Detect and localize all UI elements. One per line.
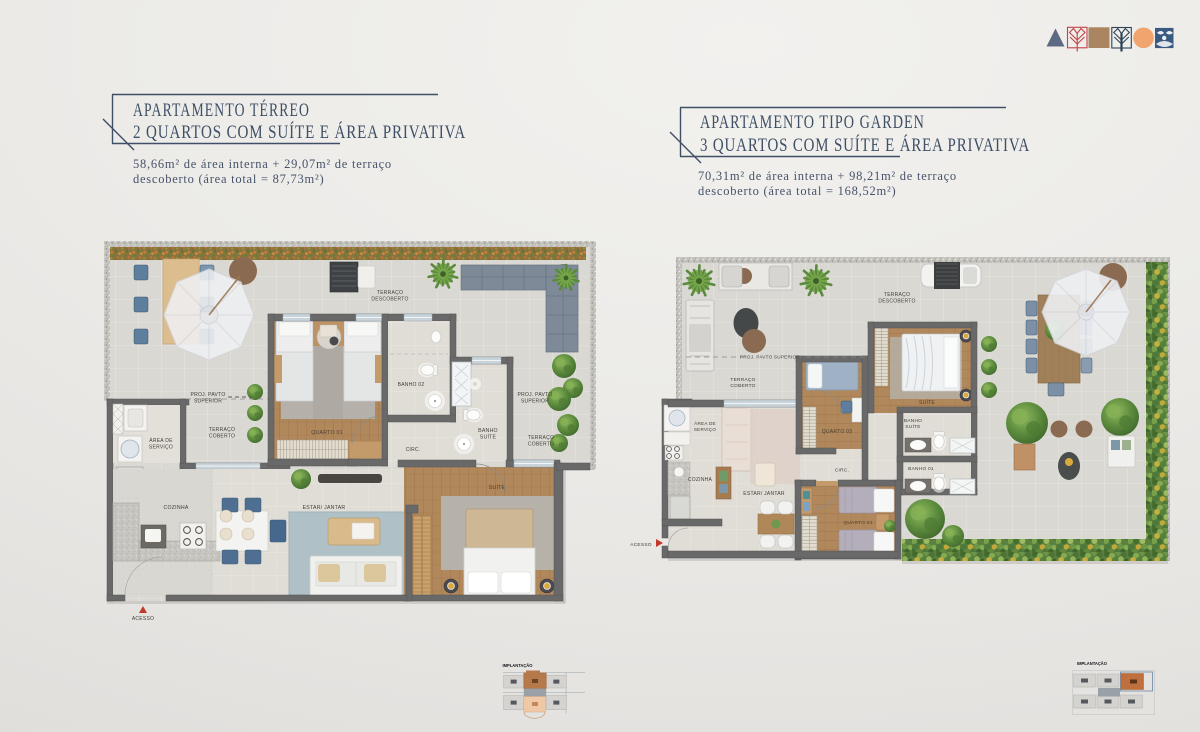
svg-text:SUÍTE: SUÍTE xyxy=(905,423,920,430)
svg-text:COBERTO: COBERTO xyxy=(730,383,755,389)
svg-text:SUÍTE: SUÍTE xyxy=(919,399,935,406)
svg-text:BANHO 01: BANHO 01 xyxy=(908,466,934,472)
svg-text:CIRC.: CIRC. xyxy=(406,447,421,453)
svg-text:BANHO 02: BANHO 02 xyxy=(398,382,425,388)
svg-text:DESCOBERTO: DESCOBERTO xyxy=(878,298,915,304)
svg-text:BANHO: BANHO xyxy=(478,428,498,434)
svg-text:SUÍTE: SUÍTE xyxy=(480,434,497,441)
svg-text:TERRAÇO: TERRAÇO xyxy=(377,290,403,296)
svg-text:ÁREA DE: ÁREA DE xyxy=(149,437,173,444)
svg-text:PROJ. PAVTO SUPERIOR: PROJ. PAVTO SUPERIOR xyxy=(740,355,800,360)
svg-text:QUARTO 01: QUARTO 01 xyxy=(843,520,872,526)
svg-text:BANHO: BANHO xyxy=(904,418,922,424)
svg-text:COZINHA: COZINHA xyxy=(163,505,188,511)
svg-text:ACESSO: ACESSO xyxy=(132,616,154,622)
svg-text:ÁREA DE: ÁREA DE xyxy=(694,420,716,426)
svg-text:SERVIÇO: SERVIÇO xyxy=(694,427,717,432)
svg-text:TERRAÇO: TERRAÇO xyxy=(884,292,910,298)
svg-text:ESTAR/ JANTAR: ESTAR/ JANTAR xyxy=(743,491,785,497)
svg-text:DESCOBERTO: DESCOBERTO xyxy=(371,296,408,302)
svg-text:COBERTO: COBERTO xyxy=(528,441,554,447)
svg-text:IMPLANTAÇÃO: IMPLANTAÇÃO xyxy=(503,663,534,668)
svg-text:TERRAÇO: TERRAÇO xyxy=(528,435,554,441)
svg-text:ESTAR/ JANTAR: ESTAR/ JANTAR xyxy=(303,505,346,511)
svg-text:COZINHA: COZINHA xyxy=(688,477,713,483)
svg-text:SUPERIOR: SUPERIOR xyxy=(521,398,549,404)
svg-text:PROJ. PAVTO: PROJ. PAVTO xyxy=(518,392,553,398)
svg-text:ACESSO: ACESSO xyxy=(630,542,652,548)
svg-text:SUÍTE: SUÍTE xyxy=(489,484,506,491)
svg-text:QUARTO 03: QUARTO 03 xyxy=(822,429,852,435)
svg-text:SUPERIOR: SUPERIOR xyxy=(194,398,222,404)
svg-text:IMPLANTAÇÃO: IMPLANTAÇÃO xyxy=(1077,661,1108,666)
svg-text:TERRAÇO: TERRAÇO xyxy=(730,377,755,383)
svg-text:QUARTO 01: QUARTO 01 xyxy=(311,430,342,436)
svg-text:CIRC.: CIRC. xyxy=(835,468,849,474)
svg-text:PROJ. PAVTO: PROJ. PAVTO xyxy=(191,392,226,398)
svg-text:TERRAÇO: TERRAÇO xyxy=(209,427,235,433)
svg-text:SERVIÇO: SERVIÇO xyxy=(149,444,173,450)
svg-text:COBERTO: COBERTO xyxy=(209,433,235,439)
